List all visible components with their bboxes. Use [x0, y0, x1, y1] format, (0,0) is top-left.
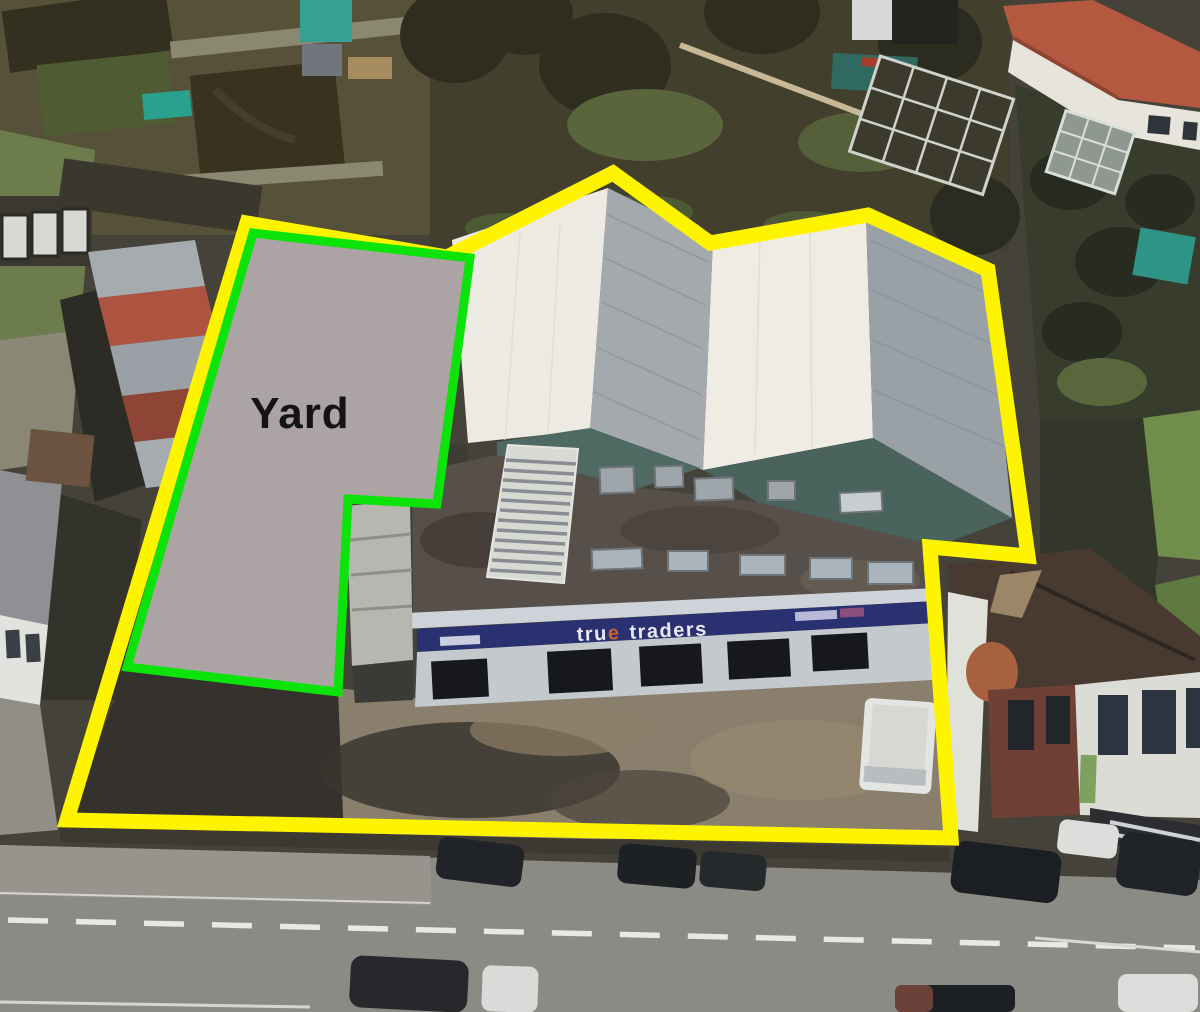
- scrub-top-middle: [400, 0, 1020, 255]
- green-door: [1079, 755, 1097, 804]
- pavement: [0, 845, 432, 905]
- teal-tarp-right: [1132, 228, 1195, 285]
- caravan: [852, 0, 897, 40]
- teal-tarp: [142, 90, 192, 120]
- annotated-aerial-screenshot: truetraders: [0, 0, 1200, 1012]
- white-van: [859, 698, 937, 795]
- warehouse-right-west-slope: [703, 216, 873, 470]
- teal-shed-roof: [300, 0, 352, 42]
- lean-to: [346, 500, 413, 703]
- white-car: [1056, 818, 1120, 859]
- yard-label: Yard: [250, 389, 349, 438]
